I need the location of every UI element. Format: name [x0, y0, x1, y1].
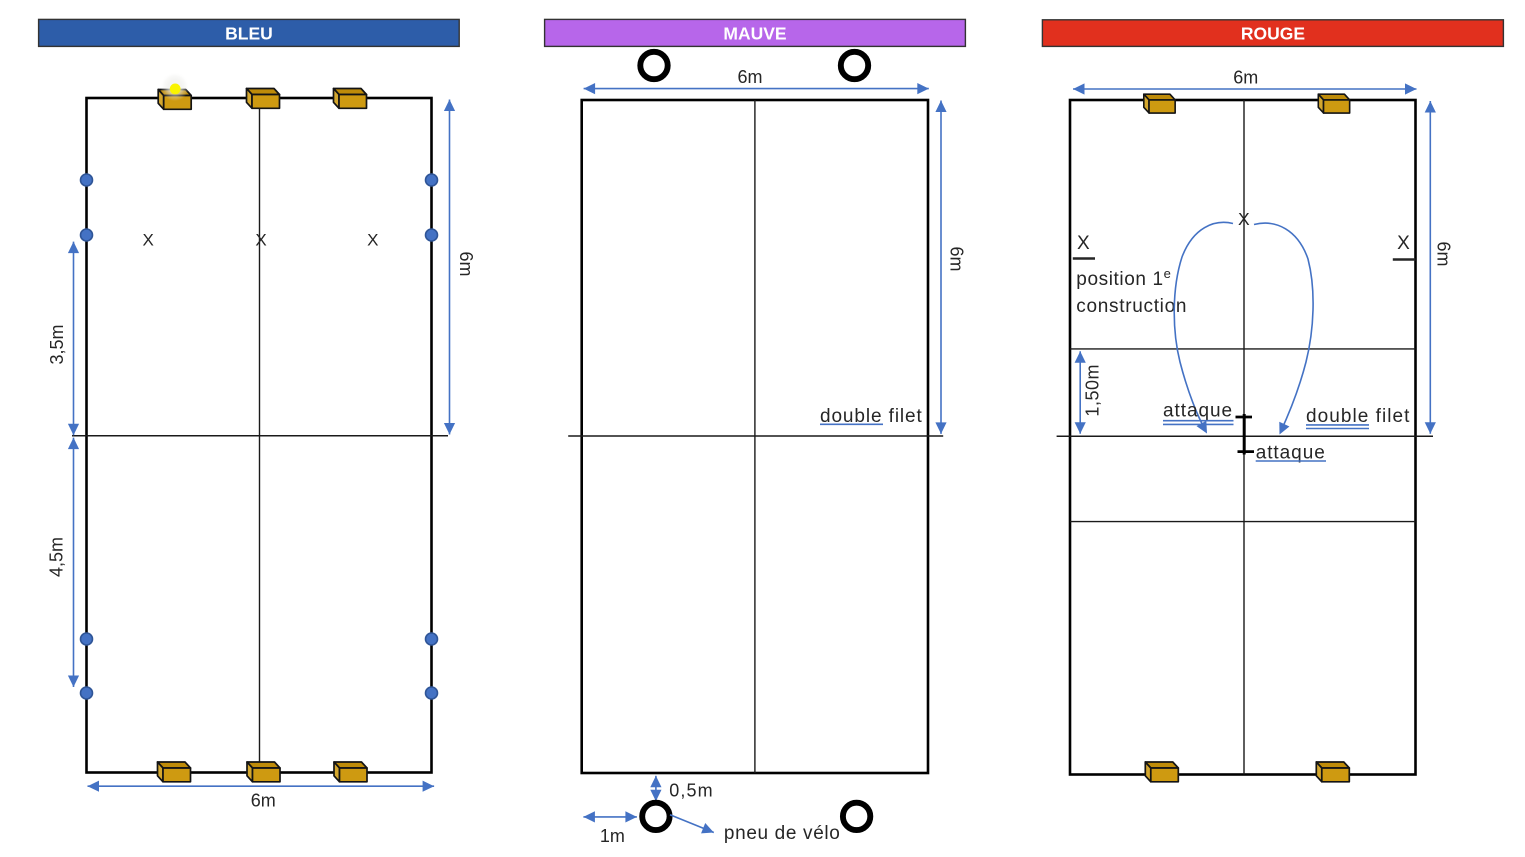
svg-text:0,5m: 0,5m [669, 781, 713, 801]
svg-text:6m: 6m [456, 251, 476, 276]
svg-text:1,50m: 1,50m [1083, 364, 1103, 417]
svg-text:1m: 1m [600, 826, 625, 846]
svg-text:MAUVE: MAUVE [723, 24, 786, 44]
svg-text:4,5m: 4,5m [47, 537, 67, 577]
svg-text:X: X [143, 231, 154, 250]
svg-text:BLEU: BLEU [225, 24, 273, 44]
svg-text:X: X [1077, 233, 1090, 254]
svg-text:attaque: attaque [1163, 401, 1233, 422]
svg-text:X: X [1238, 209, 1250, 229]
svg-text:construction: construction [1076, 296, 1187, 317]
svg-text:X: X [367, 231, 378, 250]
svg-text:double filet: double filet [1306, 406, 1411, 427]
svg-text:6m: 6m [251, 791, 276, 811]
svg-text:X: X [255, 231, 266, 250]
svg-text:6m: 6m [737, 67, 762, 87]
svg-text:position 1e: position 1e [1076, 266, 1171, 290]
svg-text:pneu de vélo: pneu de vélo [724, 823, 841, 844]
svg-text:6m: 6m [1233, 68, 1258, 88]
svg-text:3,5m: 3,5m [47, 324, 67, 364]
svg-text:ROUGE: ROUGE [1241, 24, 1305, 44]
svg-text:X: X [1397, 233, 1410, 254]
svg-text:6m: 6m [1434, 241, 1454, 266]
svg-text:6m: 6m [947, 246, 967, 271]
